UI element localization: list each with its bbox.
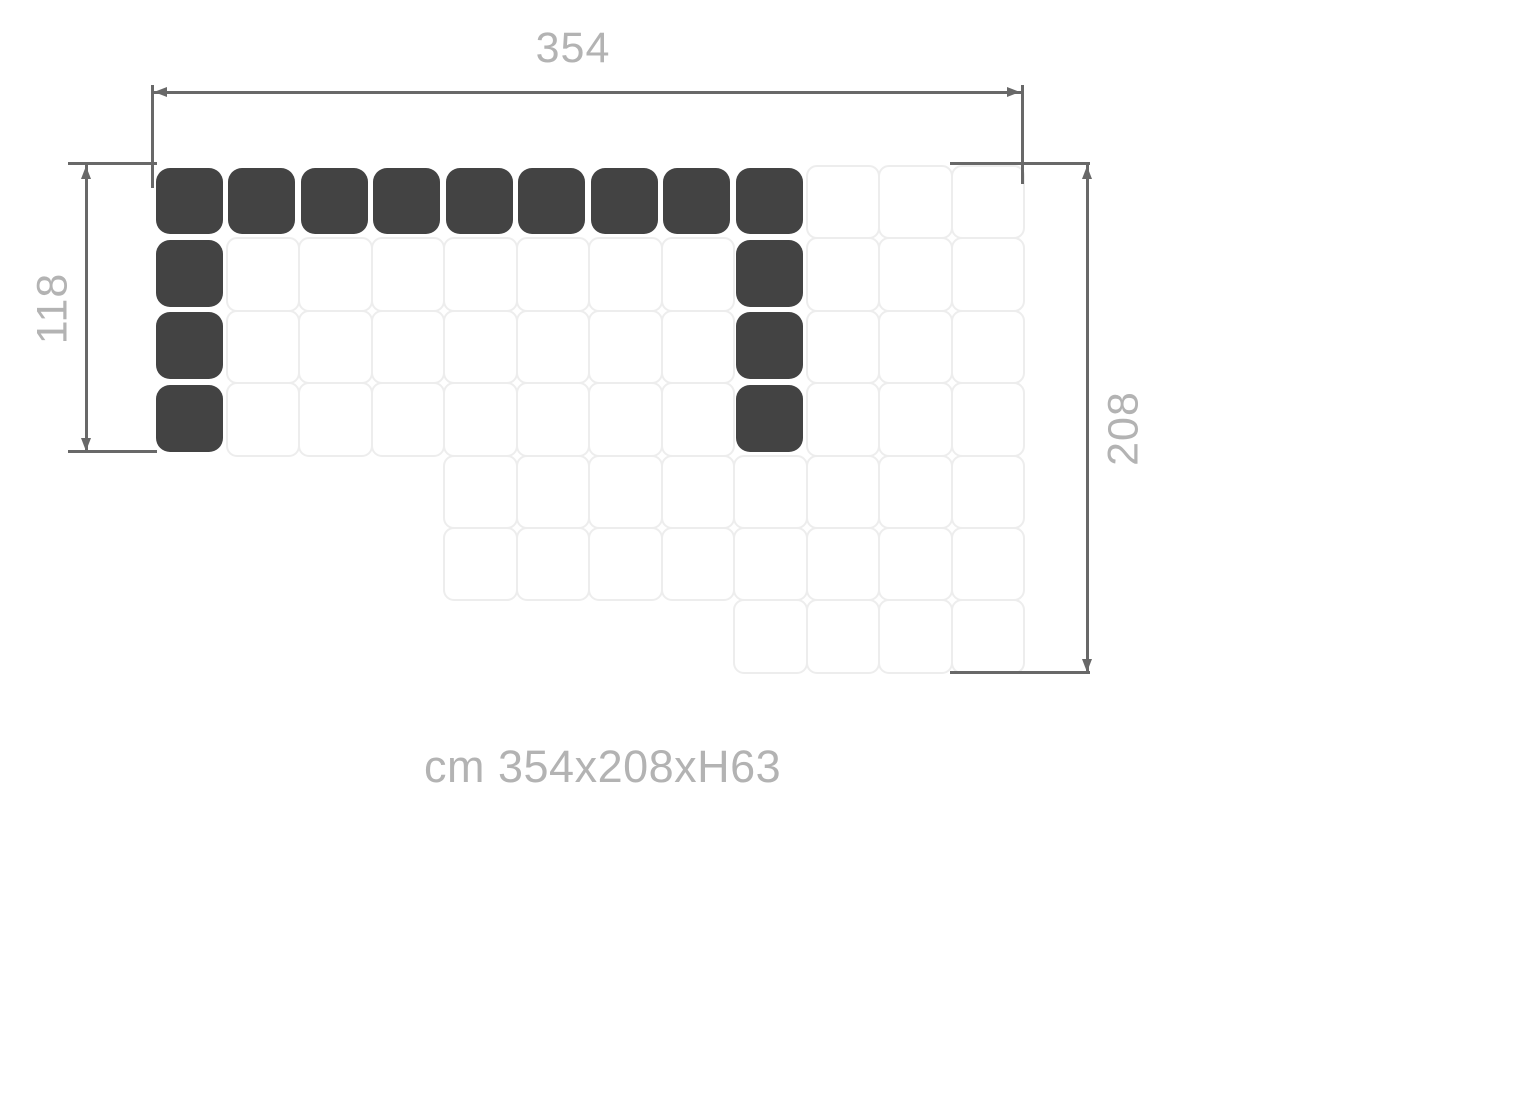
- seat-module: [443, 237, 518, 311]
- seat-module: [733, 599, 808, 673]
- seat-module: [371, 310, 446, 384]
- seat-module: [588, 527, 663, 601]
- seat-module: [661, 310, 736, 384]
- extension-line-top: [950, 162, 1090, 165]
- dimension-line-right: [1086, 164, 1089, 674]
- seat-module: [806, 599, 881, 673]
- seat-module: [661, 382, 736, 456]
- seat-module: [878, 382, 953, 456]
- seat-module: [516, 527, 591, 601]
- seat-module: [878, 455, 953, 529]
- seat-module: [371, 382, 446, 456]
- arrowhead-left-icon: [154, 87, 167, 97]
- arrowhead-down-icon: [1082, 659, 1092, 672]
- back-cushion-module: [736, 240, 803, 307]
- seat-module: [878, 165, 953, 239]
- seat-module: [443, 382, 518, 456]
- seat-module: [661, 237, 736, 311]
- seat-module: [226, 382, 301, 456]
- arrowhead-up-icon: [1082, 166, 1092, 179]
- sofa-dimension-diagram: 354 118 208 cm 354x208xH63: [0, 0, 1515, 1119]
- back-cushion-module: [663, 168, 730, 235]
- seat-module: [951, 455, 1026, 529]
- seat-module: [951, 310, 1026, 384]
- seat-module: [806, 382, 881, 456]
- seat-module: [516, 310, 591, 384]
- seat-module: [878, 237, 953, 311]
- seat-module: [806, 237, 881, 311]
- dimension-width-label: 354: [153, 27, 993, 70]
- seat-module: [806, 455, 881, 529]
- arrowhead-up-icon: [81, 166, 91, 179]
- extension-line-right: [1021, 85, 1024, 184]
- seat-module: [443, 455, 518, 529]
- seat-module: [661, 527, 736, 601]
- seat-module: [878, 310, 953, 384]
- seat-module: [298, 310, 373, 384]
- seat-module: [443, 310, 518, 384]
- back-cushion-module: [156, 385, 223, 452]
- back-cushion-module: [591, 168, 658, 235]
- dimension-left-label: 118: [32, 209, 75, 409]
- seat-module: [951, 599, 1026, 673]
- seat-module: [298, 237, 373, 311]
- seat-module: [878, 527, 953, 601]
- extension-line-left: [151, 85, 154, 188]
- dimension-right-label: 208: [1103, 329, 1146, 529]
- back-cushion-module: [156, 240, 223, 307]
- extension-line-bottom: [950, 671, 1090, 674]
- dimension-line-top: [153, 91, 1021, 94]
- seat-module: [371, 237, 446, 311]
- back-cushion-module: [736, 168, 803, 235]
- seat-module: [516, 237, 591, 311]
- seat-module: [443, 527, 518, 601]
- seat-module: [516, 455, 591, 529]
- seat-module: [588, 237, 663, 311]
- dimension-line-left: [85, 164, 88, 452]
- seat-module: [951, 527, 1026, 601]
- back-cushion-module: [736, 312, 803, 379]
- seat-module: [806, 527, 881, 601]
- seat-module: [516, 382, 591, 456]
- back-cushion-module: [156, 312, 223, 379]
- seat-module: [951, 382, 1026, 456]
- seat-module: [226, 310, 301, 384]
- seat-module: [226, 237, 301, 311]
- arrowhead-right-icon: [1007, 87, 1020, 97]
- seat-module: [661, 455, 736, 529]
- size-caption: cm 354x208xH63: [424, 744, 781, 789]
- seat-module: [733, 455, 808, 529]
- back-cushion-module: [228, 168, 295, 235]
- seat-module: [806, 165, 881, 239]
- back-cushion-module: [446, 168, 513, 235]
- seat-module: [588, 455, 663, 529]
- back-cushion-module: [301, 168, 368, 235]
- back-cushion-module: [156, 168, 223, 235]
- seat-module: [298, 382, 373, 456]
- seat-module: [806, 310, 881, 384]
- seat-module: [588, 382, 663, 456]
- seat-module: [951, 237, 1026, 311]
- seat-module: [878, 599, 953, 673]
- seat-module: [951, 165, 1026, 239]
- seat-module: [733, 527, 808, 601]
- back-cushion-module: [736, 385, 803, 452]
- back-cushion-module: [373, 168, 440, 235]
- extension-line-top: [68, 162, 157, 165]
- back-cushion-module: [518, 168, 585, 235]
- seat-module: [588, 310, 663, 384]
- arrowhead-down-icon: [81, 438, 91, 451]
